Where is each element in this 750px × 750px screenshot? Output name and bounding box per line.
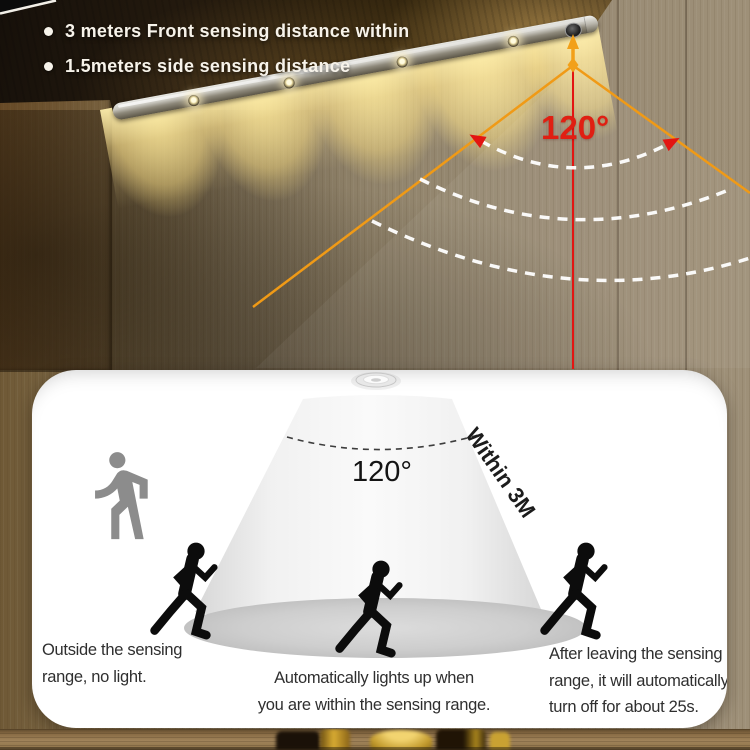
sensor-dot (371, 378, 381, 382)
caption-line: Automatically lights up when (184, 665, 564, 692)
caption-line: After leaving the sensing (549, 641, 727, 668)
cone-angle-label: 120° (332, 456, 432, 489)
caption-outside-range: Outside the sensing range, no light. (42, 637, 182, 690)
feature-bullet-1-label: 3 meters Front sensing distance within (65, 21, 409, 42)
caption-inside-range: Automatically lights up when you are wit… (184, 665, 564, 718)
sensing-diagram-panel: 120° Within 3M Outside the sensing range… (32, 370, 727, 728)
bullet-dot-icon (44, 27, 53, 36)
caption-leaving-range: After leaving the sensing range, it will… (549, 641, 727, 721)
wall-angle-label: 120° (541, 109, 609, 147)
walking-person-icon (95, 452, 148, 539)
feature-bullet-2: 1.5meters side sensing distance (44, 56, 350, 77)
product-infographic: 120° 3 meters Front sensing distance wit… (0, 0, 750, 750)
caption-line: you are within the sensing range. (184, 692, 564, 719)
led-dot (507, 35, 520, 48)
led-dot (396, 56, 409, 69)
caption-line: range, it will automatically (549, 668, 727, 695)
caption-line: Outside the sensing (42, 637, 182, 664)
caption-line: range, no light. (42, 664, 182, 691)
countertop (0, 729, 750, 750)
led-dot (187, 94, 200, 107)
bullet-dot-icon (44, 62, 53, 71)
caption-line: turn off for about 25s. (549, 694, 727, 721)
led-dot (283, 77, 296, 90)
feature-bullet-1: 3 meters Front sensing distance within (44, 21, 409, 42)
feature-bullet-2-label: 1.5meters side sensing distance (65, 56, 350, 77)
